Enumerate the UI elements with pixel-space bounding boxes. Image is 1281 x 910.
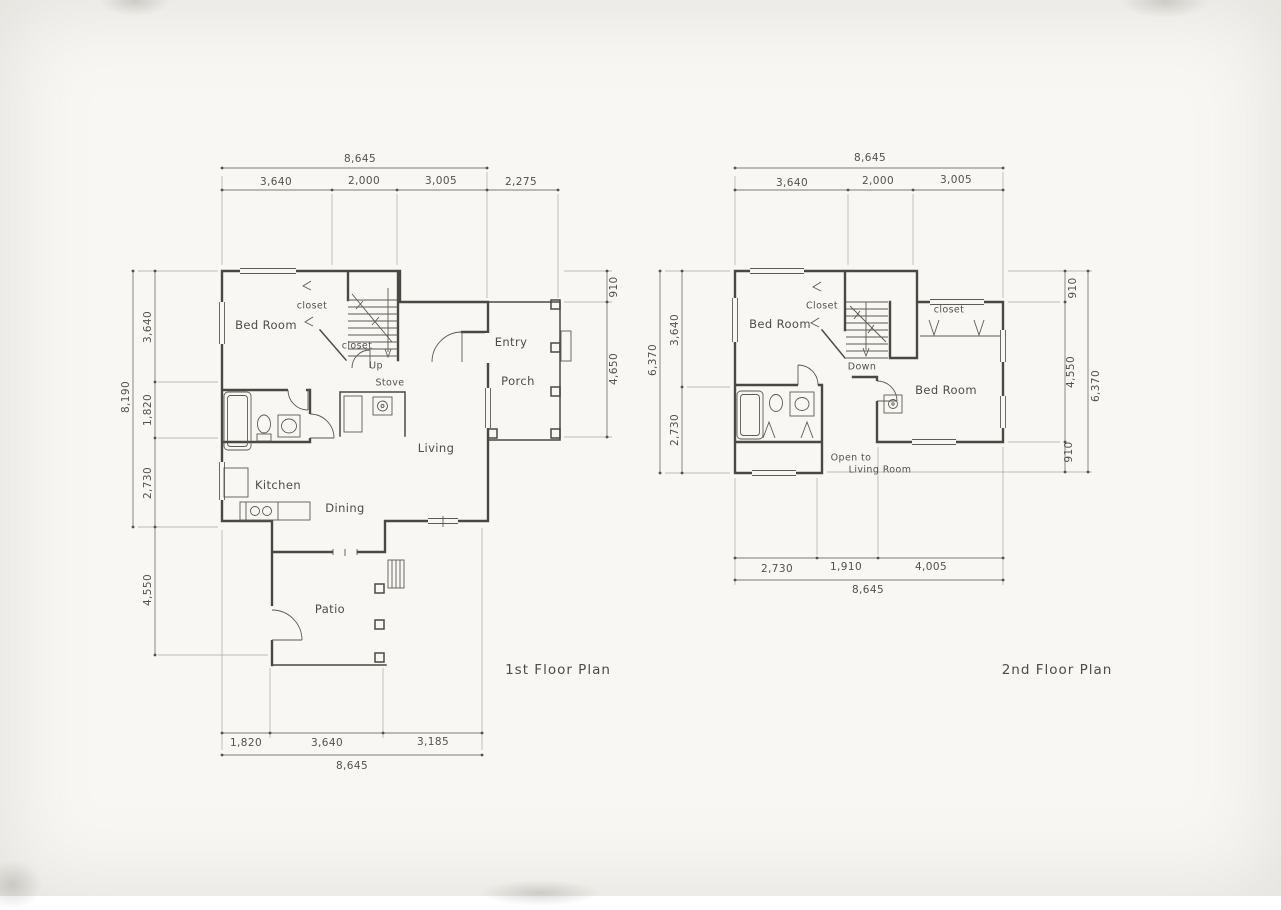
room-1f-bedroom: Bed Room — [235, 318, 297, 332]
dim-1f-bottom-2: 3,640 — [311, 737, 343, 749]
room-2f-closet-right: closet — [934, 305, 965, 316]
label-1f-up: Up — [369, 361, 383, 372]
label-2f-open-line1: Open to — [831, 453, 872, 464]
dim-2f-left-1: 3,640 — [669, 314, 681, 346]
dim-1f-bottom-overall: 8,645 — [336, 760, 368, 772]
dim-2f-right-3: 910 — [1063, 441, 1075, 462]
floor-plan-linework — [0, 0, 1281, 896]
dim-2f-bottom-1: 2,730 — [761, 563, 793, 575]
dim-2f-right-1: 910 — [1067, 277, 1079, 298]
dim-1f-top-3: 3,005 — [425, 175, 457, 187]
dim-2f-right-overall: 6,370 — [1090, 370, 1102, 402]
dim-2f-bottom-overall: 8,645 — [852, 584, 884, 596]
dim-2f-top-3: 3,005 — [940, 174, 972, 186]
dim-2f-left-overall: 6,370 — [647, 344, 659, 376]
drawing-sheet: 8,645 3,640 2,000 3,005 2,275 8,190 3,64… — [0, 0, 1281, 896]
first-floor-stove-nook — [340, 392, 405, 436]
room-2f-bedroom-right: Bed Room — [915, 383, 977, 397]
second-floor-bathroom-fixtures — [737, 391, 814, 439]
first-floor-porch-posts — [488, 300, 571, 438]
room-2f-bedroom-left: Bed Room — [749, 317, 811, 331]
dim-1f-bottom-3: 3,185 — [417, 736, 449, 748]
dim-1f-top-overall: 8,645 — [344, 153, 376, 165]
dim-2f-bottom-2: 1,910 — [830, 561, 862, 573]
dim-1f-left-2: 1,820 — [142, 394, 154, 426]
dim-2f-bottom-3: 4,005 — [915, 561, 947, 573]
first-floor-kitchen-fixtures — [224, 468, 310, 520]
dim-2f-top-1: 3,640 — [776, 177, 808, 189]
dim-1f-left-3: 2,730 — [142, 467, 154, 499]
dim-1f-top-1: 3,640 — [260, 176, 292, 188]
caption-first-floor-plan: 1st Floor Plan — [505, 662, 611, 678]
dim-1f-left-1: 3,640 — [142, 311, 154, 343]
dim-2f-top-2: 2,000 — [862, 175, 894, 187]
dim-2f-top-overall: 8,645 — [854, 152, 886, 164]
second-floor-extension-lines — [665, 172, 1092, 585]
room-1f-patio: Patio — [315, 602, 345, 616]
room-1f-dining: Dining — [325, 501, 365, 515]
room-1f-living: Living — [418, 441, 455, 455]
room-1f-entry: Entry — [495, 335, 528, 349]
room-1f-closet-stair: closet — [342, 341, 373, 352]
dim-1f-right-1: 910 — [608, 276, 620, 297]
second-floor-heater — [884, 395, 902, 413]
room-1f-closet-upper: closet — [297, 301, 328, 312]
first-floor-patio-posts-and-steps — [375, 560, 404, 662]
dim-1f-top-2: 2,000 — [348, 175, 380, 187]
dim-1f-bottom-1: 1,820 — [230, 737, 262, 749]
second-floor-dimension-lines — [660, 168, 1088, 580]
dim-1f-left-overall: 8,190 — [120, 381, 132, 413]
dim-2f-left-2: 2,730 — [669, 414, 681, 446]
dim-1f-left-4: 4,550 — [142, 574, 154, 606]
second-floor-stairs — [846, 302, 888, 358]
label-2f-down: Down — [848, 362, 877, 373]
caption-second-floor-plan: 2nd Floor Plan — [1002, 662, 1113, 678]
dim-1f-top-4: 2,275 — [505, 176, 537, 188]
label-2f-open-line2: Living Room — [849, 465, 912, 476]
dim-1f-right-2: 4,650 — [608, 353, 620, 385]
room-2f-closet-left: Closet — [806, 301, 838, 312]
dim-2f-right-2: 4,550 — [1065, 356, 1077, 388]
label-1f-stove: Stove — [375, 378, 404, 389]
room-1f-porch: Porch — [501, 374, 535, 388]
room-1f-kitchen: Kitchen — [255, 478, 301, 492]
